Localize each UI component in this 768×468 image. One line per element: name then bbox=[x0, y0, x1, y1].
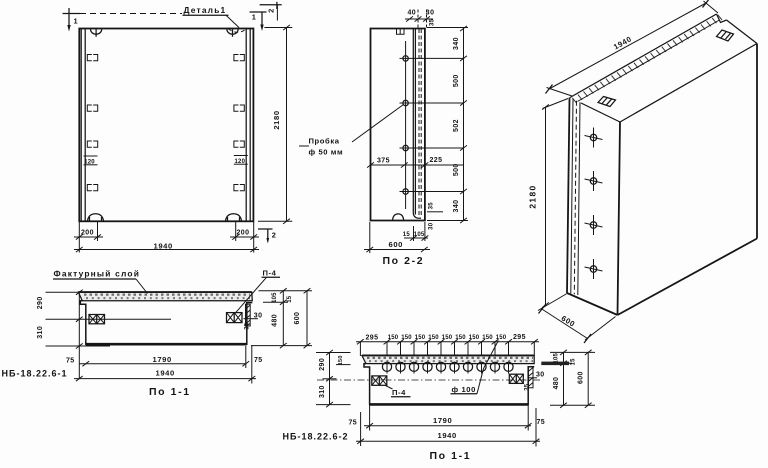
svg-text:ф 50 мм: ф 50 мм bbox=[309, 148, 344, 157]
svg-text:35: 35 bbox=[428, 202, 434, 210]
svg-text:500: 500 bbox=[453, 74, 460, 87]
svg-text:150: 150 bbox=[455, 335, 466, 341]
svg-text:35: 35 bbox=[430, 19, 436, 27]
svg-text:105: 105 bbox=[554, 352, 560, 363]
svg-text:15: 15 bbox=[287, 295, 293, 303]
svg-text:15: 15 bbox=[403, 232, 411, 238]
svg-text:1: 1 bbox=[74, 17, 78, 26]
svg-text:600: 600 bbox=[294, 312, 301, 325]
svg-text:502: 502 bbox=[453, 119, 460, 132]
svg-text:75: 75 bbox=[537, 419, 546, 426]
svg-text:2180: 2180 bbox=[528, 184, 538, 208]
svg-text:75: 75 bbox=[66, 357, 75, 364]
svg-text:200: 200 bbox=[81, 229, 94, 236]
svg-text:120: 120 bbox=[84, 160, 95, 166]
svg-text:310: 310 bbox=[319, 385, 326, 398]
svg-text:Пробка: Пробка bbox=[309, 137, 340, 146]
svg-text:150: 150 bbox=[428, 335, 439, 341]
svg-text:75: 75 bbox=[349, 419, 358, 426]
svg-text:1790: 1790 bbox=[153, 355, 172, 364]
svg-text:40: 40 bbox=[408, 10, 417, 17]
svg-text:1940: 1940 bbox=[438, 431, 457, 440]
svg-text:150: 150 bbox=[338, 355, 344, 365]
svg-text:По 1-1: По 1-1 bbox=[149, 386, 191, 398]
svg-text:150: 150 bbox=[415, 335, 426, 341]
svg-text:105: 105 bbox=[272, 292, 278, 303]
svg-text:ф 100: ф 100 bbox=[452, 385, 476, 394]
svg-text:2180: 2180 bbox=[272, 110, 281, 129]
svg-text:П-4: П-4 bbox=[263, 268, 277, 277]
svg-text:105: 105 bbox=[414, 232, 425, 238]
svg-text:30: 30 bbox=[426, 10, 435, 17]
svg-text:По 1-1: По 1-1 bbox=[430, 450, 472, 462]
svg-text:75: 75 bbox=[254, 357, 263, 364]
svg-text:150: 150 bbox=[442, 335, 453, 341]
svg-text:295: 295 bbox=[366, 334, 379, 341]
svg-text:По 2-2: По 2-2 bbox=[383, 255, 425, 267]
svg-text:375: 375 bbox=[377, 158, 390, 165]
svg-text:150: 150 bbox=[496, 335, 507, 341]
svg-text:2: 2 bbox=[266, 9, 275, 13]
svg-text:290: 290 bbox=[37, 296, 44, 309]
svg-text:П-4: П-4 bbox=[392, 388, 406, 397]
svg-text:480: 480 bbox=[271, 314, 278, 327]
svg-text:Фактурный слой: Фактурный слой bbox=[54, 269, 141, 279]
svg-text:1940: 1940 bbox=[156, 368, 175, 377]
svg-text:2: 2 bbox=[272, 231, 276, 240]
svg-text:НБ-18.22.6-1: НБ-18.22.6-1 bbox=[2, 369, 68, 379]
svg-text:35: 35 bbox=[245, 322, 251, 330]
svg-text:150: 150 bbox=[482, 335, 493, 341]
svg-text:30: 30 bbox=[254, 312, 263, 319]
svg-text:15: 15 bbox=[571, 358, 577, 366]
svg-text:120: 120 bbox=[235, 159, 246, 165]
svg-text:150: 150 bbox=[401, 335, 412, 341]
svg-text:30: 30 bbox=[536, 372, 545, 379]
svg-text:480: 480 bbox=[553, 377, 560, 390]
svg-text:150: 150 bbox=[388, 335, 399, 341]
svg-text:35: 35 bbox=[525, 383, 531, 391]
svg-text:1790: 1790 bbox=[433, 416, 452, 425]
svg-text:Деталь1: Деталь1 bbox=[184, 5, 227, 15]
svg-text:200: 200 bbox=[237, 229, 250, 236]
svg-text:340: 340 bbox=[453, 37, 460, 50]
svg-text:1: 1 bbox=[252, 13, 256, 22]
svg-text:150: 150 bbox=[469, 335, 480, 341]
svg-text:НБ-18.22.6-2: НБ-18.22.6-2 bbox=[283, 432, 349, 442]
svg-text:310: 310 bbox=[37, 326, 44, 339]
svg-text:290: 290 bbox=[319, 358, 326, 371]
svg-text:30: 30 bbox=[428, 222, 434, 230]
svg-text:600: 600 bbox=[389, 240, 403, 249]
svg-text:1940: 1940 bbox=[154, 241, 173, 250]
svg-text:295: 295 bbox=[513, 334, 526, 341]
svg-text:600: 600 bbox=[578, 371, 585, 384]
svg-text:225: 225 bbox=[430, 157, 443, 164]
svg-text:340: 340 bbox=[453, 200, 460, 213]
